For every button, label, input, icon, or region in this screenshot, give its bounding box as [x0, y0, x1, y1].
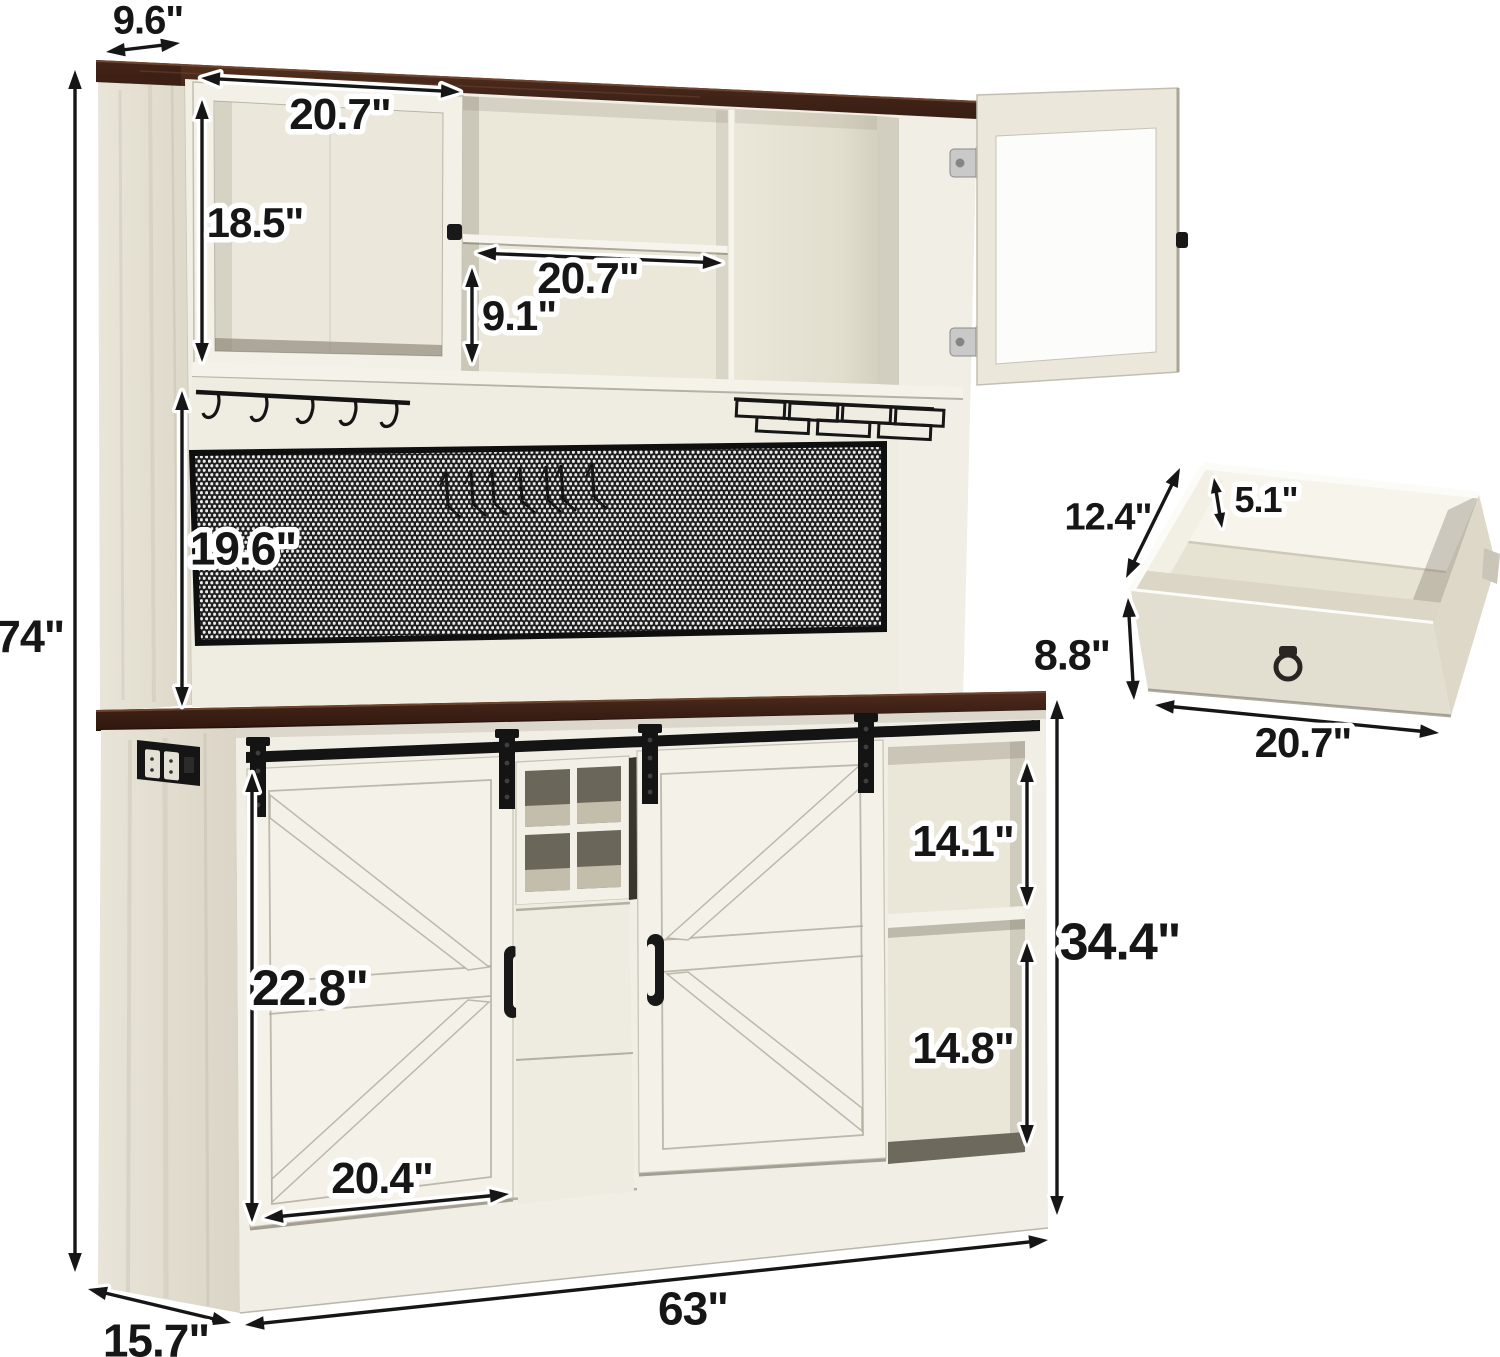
svg-text:20.7": 20.7"	[289, 90, 391, 139]
svg-text:14.8": 14.8"	[912, 1024, 1014, 1073]
svg-text:12.4": 12.4"	[1065, 497, 1152, 539]
svg-text:14.1": 14.1"	[912, 817, 1014, 866]
svg-text:74": 74"	[0, 611, 64, 662]
svg-text:9.1": 9.1"	[482, 292, 556, 339]
svg-text:5.1": 5.1"	[1234, 479, 1297, 520]
svg-text:63": 63"	[658, 1283, 728, 1335]
svg-text:15.7": 15.7"	[103, 1315, 209, 1357]
svg-text:34.4": 34.4"	[1060, 914, 1181, 972]
svg-text:8.8": 8.8"	[1034, 631, 1110, 679]
svg-text:22.8": 22.8"	[252, 960, 368, 1016]
svg-text:9.6": 9.6"	[113, 0, 184, 42]
svg-text:18.5": 18.5"	[207, 199, 304, 246]
svg-text:20.4": 20.4"	[331, 1154, 433, 1203]
svg-text:19.6": 19.6"	[190, 523, 296, 575]
svg-text:20.7": 20.7"	[1255, 719, 1352, 766]
